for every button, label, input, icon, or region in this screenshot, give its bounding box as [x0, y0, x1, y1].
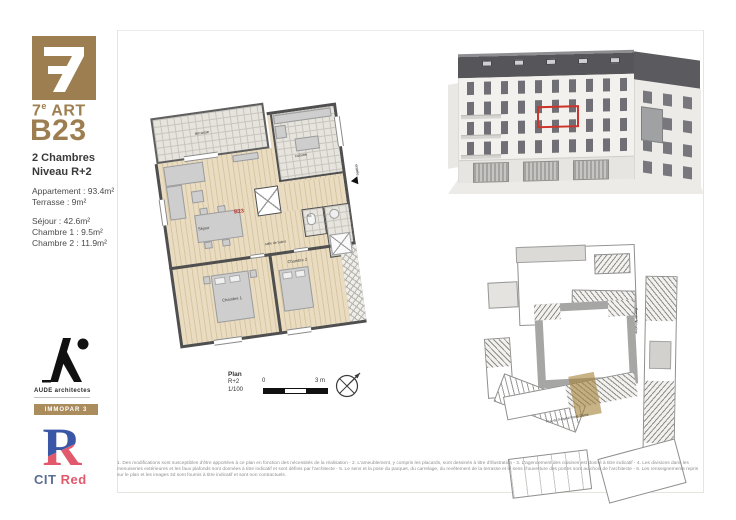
brochure-page: 7e ART B23 2 Chambres Niveau R+2 Apparte…: [0, 0, 736, 520]
cartouche-title: Plan: [228, 371, 243, 379]
wing-glazed-balcony: [641, 106, 663, 143]
building-window: [586, 99, 593, 112]
site-plan: Rue de l'Hôpital Notre-Dame Rue de l'Arb…: [494, 242, 706, 520]
building-window: [603, 138, 610, 151]
site-hatched-corner: [534, 303, 561, 320]
building-window: [586, 79, 593, 92]
roof-dormer: [546, 59, 556, 65]
unit-id: B23: [30, 114, 87, 148]
building-window: [683, 120, 692, 133]
building-window: [501, 81, 508, 94]
pillow: [282, 271, 293, 279]
site-hatched-roof: [646, 277, 677, 322]
site-hatched-roof: [485, 338, 511, 368]
building-window: [643, 161, 652, 174]
building-window: [620, 78, 627, 91]
building-window: [501, 141, 508, 154]
building-window: [535, 80, 542, 93]
north-compass-icon: [334, 369, 364, 399]
building-window: [620, 138, 627, 151]
entree-arrow-icon: [350, 176, 358, 185]
label-entree: entrée: [354, 164, 360, 176]
site-hatched-roof: [644, 381, 675, 444]
building-window: [484, 81, 491, 94]
unit-level: Niveau R+2: [32, 166, 92, 178]
building-window: [535, 140, 542, 153]
building-window: [620, 118, 627, 131]
unit-type: 2 Chambres: [32, 152, 95, 164]
site-building-west: [487, 281, 518, 309]
site-building-east: [642, 276, 677, 459]
cit-red-wordmark: CIT Red: [34, 472, 87, 487]
building-window: [518, 121, 525, 134]
scalebar-end: 3 m: [315, 378, 325, 384]
building-window: [467, 142, 474, 155]
building-window: [501, 101, 508, 114]
building-window: [663, 117, 672, 130]
architect-subline: [34, 397, 90, 398]
brand-logo: [32, 36, 96, 100]
scalebar-start: 0: [262, 378, 265, 384]
coffee-table: [191, 190, 205, 204]
render-ground-floor: [459, 156, 635, 184]
site-roof-band: [516, 245, 587, 263]
chair: [222, 239, 231, 247]
chair: [217, 205, 226, 213]
building-window: [467, 102, 474, 115]
floor-plan: terrasse cuisine Séjour B23 Chambre 1 Ch…: [148, 92, 375, 357]
cartouche-scale: 1/100: [228, 387, 243, 395]
crossed-seven-icon: [32, 36, 96, 100]
nightstand: [249, 269, 257, 278]
room-placard: [254, 185, 282, 216]
roof-dormer: [578, 58, 588, 64]
cartouche-level: R+2: [228, 379, 243, 387]
frame-left-line: [117, 30, 118, 492]
architect-name: AUDE architectes: [34, 388, 91, 394]
immopar-badge: IMMOPAR 3: [34, 404, 98, 415]
building-window: [484, 101, 491, 114]
area-chambre2: Chambre 2 : 11.9m²: [32, 238, 107, 248]
building-window: [467, 122, 474, 135]
area-apartment: Appartement : 93.4m²: [32, 186, 114, 196]
garage-door: [573, 159, 609, 180]
building-window: [586, 119, 593, 132]
building-window: [620, 98, 627, 111]
frame-top-line: [117, 30, 704, 31]
building-window: [683, 166, 692, 179]
architect-logo-icon: [38, 334, 92, 384]
garage-door: [473, 162, 509, 183]
site-roof-block: [649, 341, 671, 369]
building-window: [518, 81, 525, 94]
building-window: [569, 79, 576, 92]
scale-bar: [263, 388, 328, 394]
building-window: [467, 82, 474, 95]
building-window: [663, 141, 672, 154]
chair: [204, 241, 213, 249]
building-window: [518, 101, 525, 114]
red-text: Red: [61, 472, 87, 487]
site-hatched-corner: [608, 299, 635, 316]
street-label-right: Rue de l'Arbalète: [634, 308, 638, 334]
label-wc: wc: [307, 214, 312, 218]
building-window: [603, 118, 610, 131]
apartment-highlight-box: [537, 105, 579, 128]
building-window: [586, 139, 593, 152]
chair: [199, 207, 208, 215]
cit-text: CIT: [34, 472, 56, 487]
building-window: [484, 141, 491, 154]
building-window: [484, 121, 491, 134]
building-window: [501, 121, 508, 134]
render-front-facade: [458, 74, 635, 183]
roof-dormer: [514, 60, 524, 66]
area-sejour: Séjour : 42.6m²: [32, 216, 90, 226]
building-window: [552, 140, 559, 153]
building-window: [552, 80, 559, 93]
building-window: [683, 96, 692, 109]
cit-red-logo-icon: R R: [36, 420, 88, 472]
building-window: [663, 93, 672, 106]
shower: [329, 232, 353, 256]
garage-door: [523, 161, 559, 182]
building-window: [603, 98, 610, 111]
pillow: [295, 269, 306, 277]
nightstand: [203, 276, 211, 285]
fridge: [275, 125, 288, 139]
building-window: [663, 163, 672, 176]
render-left-wall: [448, 83, 458, 169]
building-window: [518, 141, 525, 154]
roof-dormer: [610, 57, 620, 63]
area-chambre1: Chambre 1 : 9.5m²: [32, 227, 103, 237]
render-wing-facade: [634, 79, 701, 188]
roof-dormer: [482, 60, 492, 66]
building-window: [683, 144, 692, 157]
building-window: [643, 91, 652, 104]
site-hatched-roof: [594, 253, 631, 274]
disclaimer-text: 1. Des modifications sont susceptibles d…: [117, 460, 704, 478]
building-window: [603, 78, 610, 91]
building-window: [569, 139, 576, 152]
plan-cartouche: Plan R+2 1/100: [228, 371, 243, 395]
area-terrace: Terrasse : 9m²: [32, 197, 86, 207]
building-3d-render: [448, 48, 704, 196]
